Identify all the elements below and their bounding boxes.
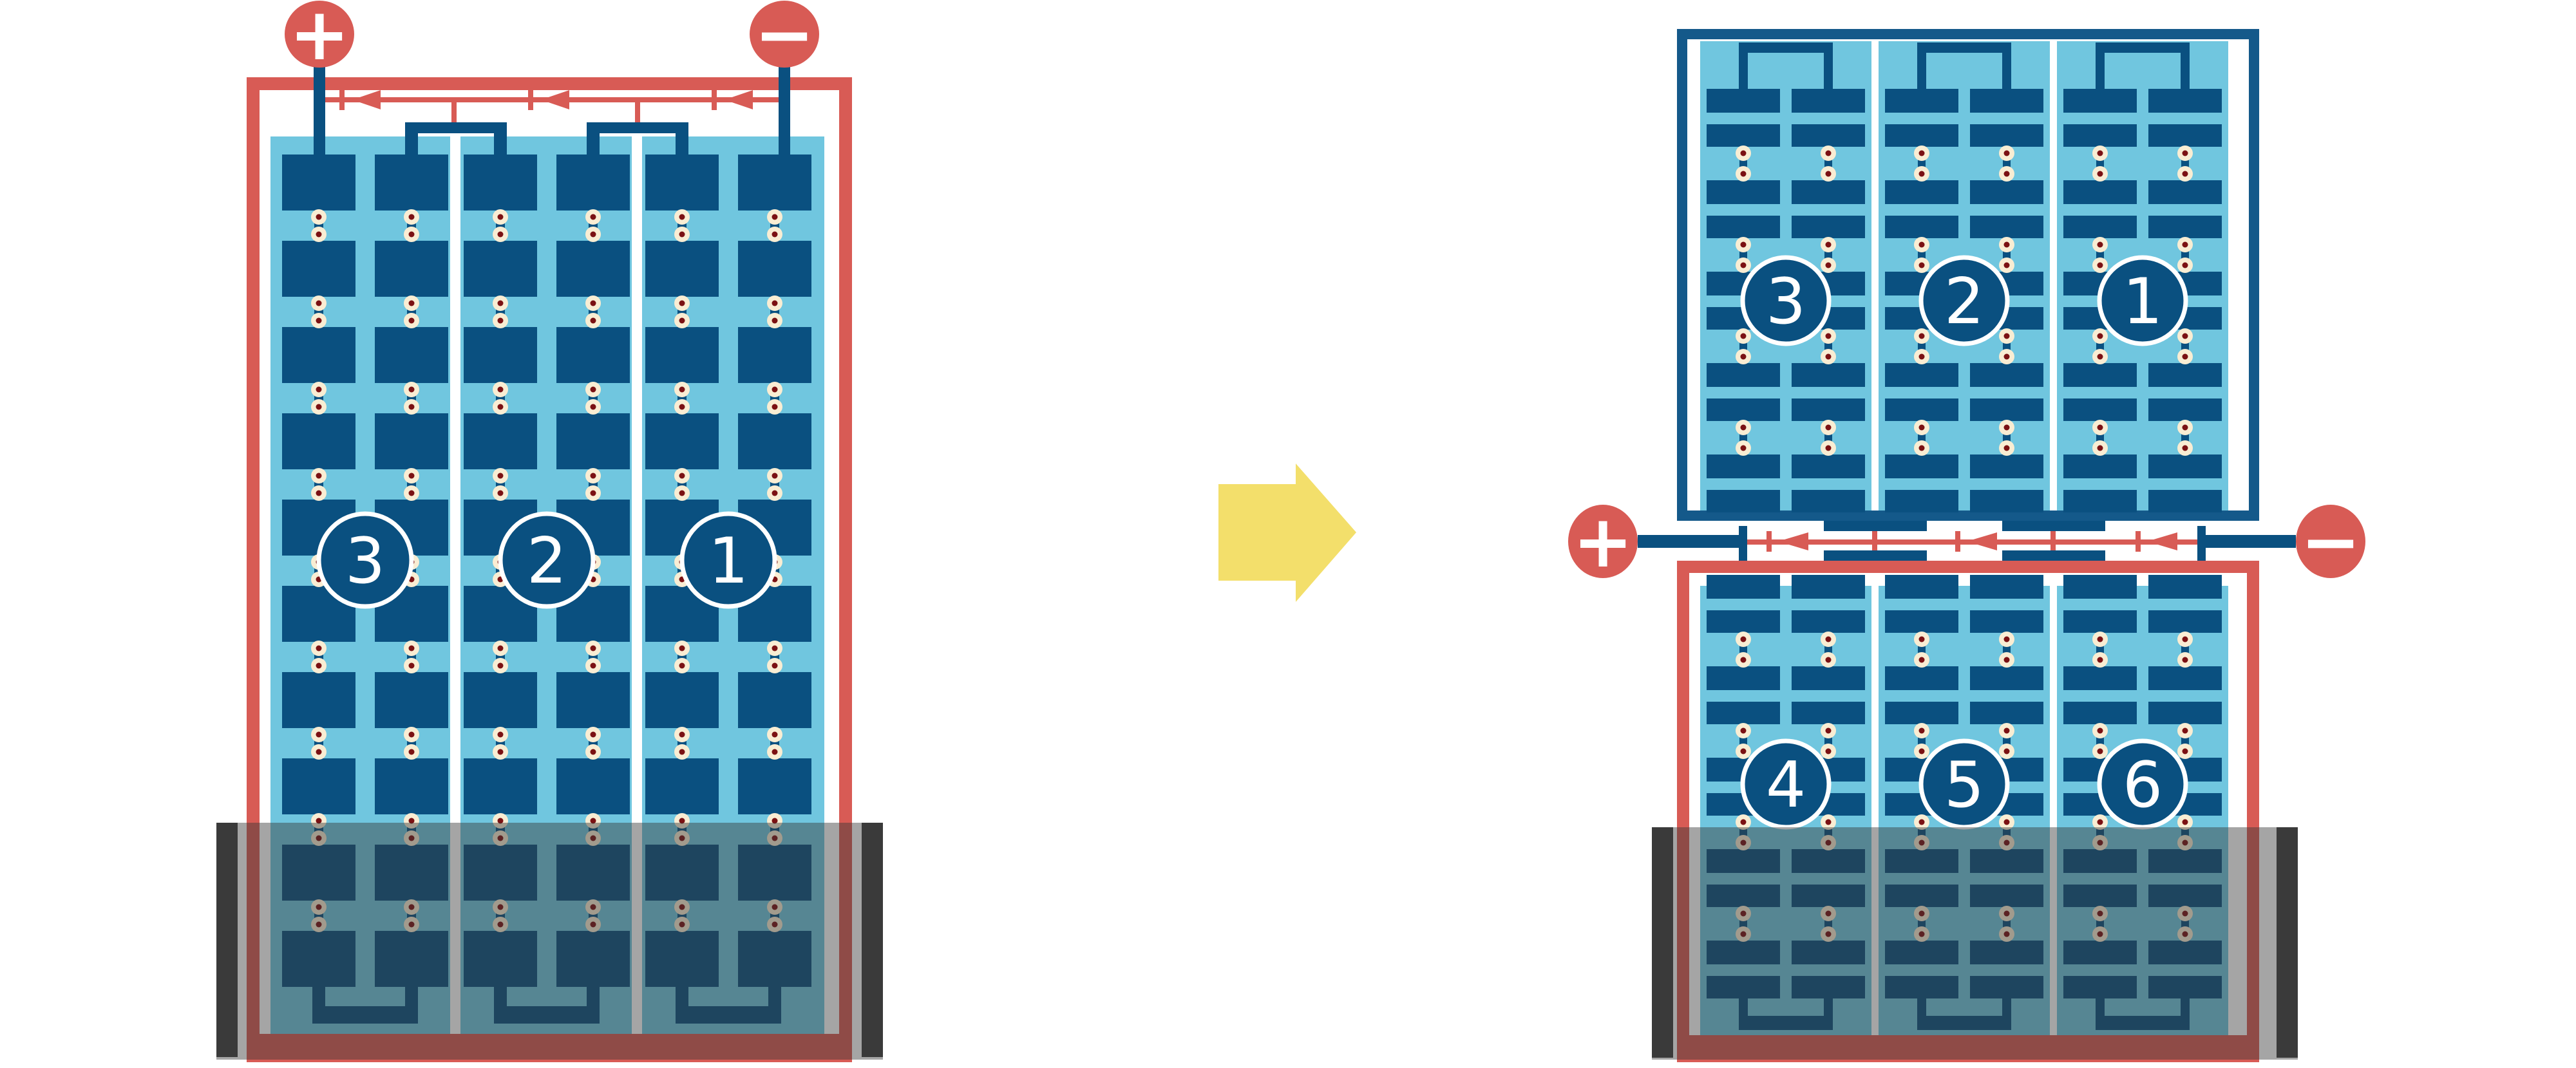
solar-cell (1970, 454, 2043, 478)
solder-point (591, 749, 596, 755)
solar-cell (645, 672, 719, 728)
solar-cell (464, 155, 537, 211)
solar-cell (645, 327, 719, 383)
solder-point (316, 301, 322, 306)
solder-point (409, 214, 415, 220)
solder-point (1826, 445, 1832, 451)
busbar-leg (2181, 42, 2190, 89)
diode-arrow-icon (1778, 532, 1808, 550)
solder-point (772, 491, 778, 496)
solder-point (772, 749, 778, 755)
solar-cell (1707, 124, 1780, 147)
solder-point (772, 232, 778, 238)
solder-point (409, 301, 415, 306)
solar-cell (1707, 610, 1780, 633)
solder-point (498, 404, 504, 410)
solder-point (1741, 171, 1747, 177)
solder-point (679, 473, 685, 479)
solar-cell (1970, 610, 2043, 633)
solar-cell (738, 413, 811, 469)
solder-point (679, 301, 685, 306)
solder-point (1919, 151, 1925, 156)
solar-cell (1885, 490, 1958, 512)
string-number: 3 (345, 525, 385, 598)
solder-point (2183, 333, 2188, 339)
solder-point (2004, 749, 2010, 754)
solder-point (1919, 425, 1925, 431)
diode-arrow-icon (352, 90, 381, 109)
solder-point (2004, 333, 2010, 339)
busbar-leg (676, 122, 688, 155)
top-busbar (1739, 42, 1833, 53)
solder-point (2098, 333, 2103, 339)
solar-cell (1792, 702, 1865, 724)
solder-point (2098, 749, 2103, 754)
solder-point (1826, 151, 1832, 156)
solar-cell (1885, 575, 1958, 599)
solder-point (2004, 354, 2010, 360)
solar-cell (2148, 398, 2222, 421)
solder-point (409, 749, 415, 755)
negative-terminal: − (750, 0, 819, 77)
solder-point (679, 404, 685, 410)
solar-cell (464, 327, 537, 383)
busbar-leg (587, 122, 600, 155)
solder-point (1826, 171, 1832, 177)
solder-point (772, 214, 778, 220)
bypass-diode-line-left (325, 89, 780, 124)
solder-point (1741, 728, 1747, 734)
diode-arrow-icon (541, 90, 569, 109)
solder-point (2004, 637, 2010, 642)
solder-point (316, 473, 322, 479)
busbar-leg (1917, 42, 1926, 89)
solar-cell (556, 672, 630, 728)
busbar-leg (2096, 42, 2105, 89)
solder-point (2183, 445, 2188, 451)
string-number: 1 (708, 525, 748, 598)
solder-point (591, 473, 596, 479)
solar-cell (1970, 216, 2043, 238)
solar-cell (375, 327, 448, 383)
solder-point (498, 387, 504, 393)
solder-point (409, 646, 415, 651)
solar-cell (282, 327, 355, 383)
solder-point (1919, 728, 1925, 734)
solar-cell (1885, 454, 1958, 478)
solder-point (591, 491, 596, 496)
solder-point (1826, 425, 1832, 431)
solder-point (498, 646, 504, 651)
solder-point (498, 732, 504, 738)
solder-point (2183, 820, 2188, 825)
solder-point (409, 663, 415, 669)
diode-cathode-tick (1955, 531, 1960, 552)
upper-module-body: 321 (1700, 41, 2228, 512)
diode-cathode-tick (712, 89, 717, 110)
solar-cell (1970, 89, 2043, 113)
solar-cell (1792, 89, 1865, 113)
minus-icon: − (2300, 500, 2361, 584)
solder-point (1919, 445, 1925, 451)
solder-point (1919, 171, 1925, 177)
solder-point (1919, 354, 1925, 360)
solar-cell (2063, 454, 2137, 478)
string-number-badge: 3 (1743, 258, 1829, 344)
solder-point (1826, 333, 1832, 339)
solder-point (1826, 657, 1832, 663)
solder-point (2183, 637, 2188, 642)
solar-cell (1792, 575, 1865, 599)
water-overlay (1652, 827, 2298, 1060)
solar-cell (556, 758, 630, 814)
flood-zone-left (216, 823, 883, 1060)
solder-point (2098, 657, 2103, 663)
solar-cell (464, 758, 537, 814)
solder-point (2004, 171, 2010, 177)
string-number-badge: 6 (2099, 741, 2186, 827)
solar-cell (1885, 363, 1958, 387)
diode-arrow-icon (2147, 532, 2177, 550)
solder-point (316, 663, 322, 669)
solder-point (772, 646, 778, 651)
solder-point (1741, 263, 1747, 268)
solar-cell (2148, 454, 2222, 478)
solder-point (591, 301, 596, 306)
solar-cell (1885, 216, 1958, 238)
busbar-leg (2002, 42, 2011, 89)
plus-icon: + (1573, 500, 1633, 584)
solar-cell (2063, 666, 2137, 690)
solder-point (1741, 425, 1747, 431)
solar-cell (2063, 702, 2137, 724)
solar-cell (2148, 180, 2222, 204)
string-number-badge: 5 (1921, 741, 2007, 827)
solar-cell (738, 241, 811, 297)
solder-point (1919, 749, 1925, 754)
solar-cell (282, 241, 355, 297)
busbar-leg (405, 122, 418, 155)
solar-cell (2148, 666, 2222, 690)
solder-point (1919, 263, 1925, 268)
solder-point (2098, 425, 2103, 431)
solar-cell (645, 758, 719, 814)
solar-cell (556, 413, 630, 469)
string-number-badge: 1 (682, 514, 775, 606)
solar-cell (556, 241, 630, 297)
solar-cell (375, 672, 448, 728)
solder-point (2183, 749, 2188, 754)
solder-point (2098, 171, 2103, 177)
solder-point (1826, 354, 1832, 360)
plus-icon: + (289, 0, 350, 77)
busbar-stub (1824, 521, 1927, 531)
solder-point (316, 387, 322, 393)
solar-cell (464, 241, 537, 297)
solar-cell (2148, 216, 2222, 238)
solar-cell (1970, 702, 2043, 724)
top-busbar (405, 122, 507, 133)
positive-terminal: + (1568, 500, 1638, 584)
solar-cell (1707, 454, 1780, 478)
solar-cell (556, 155, 630, 211)
string-number: 2 (1944, 265, 1984, 339)
solder-point (498, 473, 504, 479)
solder-point (2004, 242, 2010, 248)
solar-cell (1792, 363, 1865, 387)
solar-cell (1707, 180, 1780, 204)
solder-point (1741, 333, 1747, 339)
solder-point (1741, 242, 1747, 248)
negative-terminal: − (2296, 500, 2365, 584)
solar-cell (645, 413, 719, 469)
solder-point (409, 232, 415, 238)
solder-point (2183, 354, 2188, 360)
solder-point (498, 663, 504, 669)
solder-point (591, 646, 596, 651)
solder-point (1826, 637, 1832, 642)
solar-cell (1885, 180, 1958, 204)
top-busbar (587, 122, 688, 133)
solder-point (591, 404, 596, 410)
solar-cell (738, 758, 811, 814)
solder-point (772, 473, 778, 479)
solder-point (2183, 657, 2188, 663)
solar-cell (1792, 666, 1865, 690)
transform-arrow (1218, 464, 1356, 602)
solar-cell (2148, 124, 2222, 147)
vertical-link (1739, 526, 1747, 561)
solar-cell (1970, 180, 2043, 204)
solder-point (409, 732, 415, 738)
solar-cell (1707, 702, 1780, 724)
solder-point (591, 732, 596, 738)
solder-point (1919, 242, 1925, 248)
solder-point (1741, 445, 1747, 451)
solder-point (316, 732, 322, 738)
solder-point (772, 301, 778, 306)
solar-cell (1970, 490, 2043, 512)
solar-cell (645, 155, 719, 211)
solar-cell (282, 413, 355, 469)
solar-cell (1707, 216, 1780, 238)
solar-cell (1792, 398, 1865, 421)
combined-module: 321 + − (216, 0, 883, 1062)
solar-cell (375, 413, 448, 469)
solder-point (1826, 242, 1832, 248)
solar-cell (1792, 454, 1865, 478)
solder-point (498, 491, 504, 496)
solar-cell (2148, 610, 2222, 633)
solar-cell (1970, 363, 2043, 387)
string-number: 5 (1944, 749, 1984, 822)
solder-point (498, 232, 504, 238)
arrow-body (1218, 484, 1296, 581)
minus-icon: − (754, 0, 815, 77)
solar-cell (2148, 702, 2222, 724)
solder-point (2183, 151, 2188, 156)
solder-point (2004, 151, 2010, 156)
solar-cell (282, 155, 355, 211)
string-number: 6 (2123, 749, 2163, 822)
solder-point (409, 404, 415, 410)
solar-cell (2148, 575, 2222, 599)
solder-point (316, 214, 322, 220)
solar-cell (1885, 398, 1958, 421)
string-number: 4 (1766, 749, 1806, 822)
solder-point (679, 732, 685, 738)
solder-point (1826, 728, 1832, 734)
diode-cathode-tick (528, 89, 533, 110)
solder-point (1919, 657, 1925, 663)
solder-point (2004, 445, 2010, 451)
busbar-leg (1824, 42, 1833, 89)
solar-cell (1707, 666, 1780, 690)
solder-point (679, 318, 685, 324)
solder-point (772, 732, 778, 738)
string-number-badge: 2 (1921, 258, 2007, 344)
solder-point (409, 473, 415, 479)
solder-point (679, 387, 685, 393)
solar-cell (2148, 89, 2222, 113)
solder-point (2183, 425, 2188, 431)
solder-point (2183, 242, 2188, 248)
solar-cell (1792, 490, 1865, 512)
solar-cell (1885, 89, 1958, 113)
vertical-link (2197, 526, 2206, 561)
solar-cell (375, 758, 448, 814)
diode-arrow-icon (724, 90, 753, 109)
solar-module-wiring-diagram: 321 + − 321 (0, 0, 2576, 1068)
top-busbar (1917, 42, 2011, 53)
solder-point (2004, 263, 2010, 268)
solder-point (316, 318, 322, 324)
solder-point (1826, 749, 1832, 754)
solar-cell (2063, 216, 2137, 238)
solar-cell (1970, 124, 2043, 147)
solar-cell (2148, 490, 2222, 512)
solder-point (679, 646, 685, 651)
solar-cell (375, 155, 448, 211)
solder-point (1741, 637, 1747, 642)
solar-cell (2063, 124, 2137, 147)
solar-cell (1885, 610, 1958, 633)
solder-point (498, 318, 504, 324)
solder-point (772, 318, 778, 324)
solder-point (679, 663, 685, 669)
solar-cell (1970, 398, 2043, 421)
string-number: 3 (1766, 265, 1806, 339)
flood-zone-right (1652, 827, 2298, 1060)
solder-point (2098, 820, 2103, 825)
diode-tap (451, 102, 457, 124)
solar-cell (2063, 180, 2137, 204)
solder-point (316, 232, 322, 238)
solder-point (2098, 242, 2103, 248)
busbar-leg (1739, 42, 1748, 89)
solder-point (679, 214, 685, 220)
solar-cell (375, 241, 448, 297)
solder-point (498, 214, 504, 220)
water-overlay (216, 823, 883, 1060)
solder-point (591, 214, 596, 220)
solder-point (2004, 728, 2010, 734)
solar-cell (464, 413, 537, 469)
solder-point (1741, 151, 1747, 156)
solar-cell (2063, 490, 2137, 512)
positive-terminal: + (285, 0, 354, 77)
solder-point (409, 491, 415, 496)
solder-point (2098, 263, 2103, 268)
solder-point (1919, 820, 1925, 825)
solar-cell (1970, 666, 2043, 690)
string-number-badge: 3 (319, 514, 412, 606)
diode-cathode-tick (2136, 531, 2141, 552)
solder-point (2098, 728, 2103, 734)
diode-cathode-tick (339, 89, 345, 110)
solder-point (316, 646, 322, 651)
solar-cell (1792, 610, 1865, 633)
string-number: 2 (527, 525, 567, 598)
split-modules: 321 + − (1568, 34, 2365, 1062)
solder-point (679, 749, 685, 755)
solder-point (2004, 657, 2010, 663)
solar-cell (1792, 124, 1865, 147)
solar-cell (282, 758, 355, 814)
solder-point (2183, 263, 2188, 268)
diagram-stage: 321 + − 321 (0, 0, 2576, 1068)
solder-point (1919, 333, 1925, 339)
solder-point (772, 663, 778, 669)
solder-point (591, 232, 596, 238)
solar-cell (1707, 490, 1780, 512)
solar-cell (464, 672, 537, 728)
diode-arrow-icon (1967, 532, 1997, 550)
solar-cell (738, 327, 811, 383)
solar-cell (2063, 398, 2137, 421)
solar-cell (1885, 666, 1958, 690)
solar-cell (2063, 89, 2137, 113)
solder-point (316, 404, 322, 410)
solar-cell (2063, 575, 2137, 599)
solder-point (409, 387, 415, 393)
solder-point (591, 663, 596, 669)
solder-point (2098, 637, 2103, 642)
solder-point (2098, 151, 2103, 156)
solar-cell (2063, 363, 2137, 387)
top-busbar (2096, 42, 2190, 53)
solar-cell (1792, 180, 1865, 204)
solar-cell (1885, 124, 1958, 147)
solder-point (1741, 657, 1747, 663)
solder-point (679, 491, 685, 496)
diode-cathode-tick (1766, 531, 1772, 552)
solder-point (591, 387, 596, 393)
solder-point (498, 749, 504, 755)
solder-point (2004, 425, 2010, 431)
solar-cell (2148, 363, 2222, 387)
solder-point (1826, 820, 1832, 825)
solar-cell (738, 155, 811, 211)
solder-point (2098, 354, 2103, 360)
solar-cell (1970, 575, 2043, 599)
arrow-right-icon (1296, 464, 1356, 602)
string-number-badge: 2 (500, 514, 593, 606)
solder-point (1826, 263, 1832, 268)
solder-point (772, 387, 778, 393)
solder-point (591, 318, 596, 324)
solder-point (679, 232, 685, 238)
